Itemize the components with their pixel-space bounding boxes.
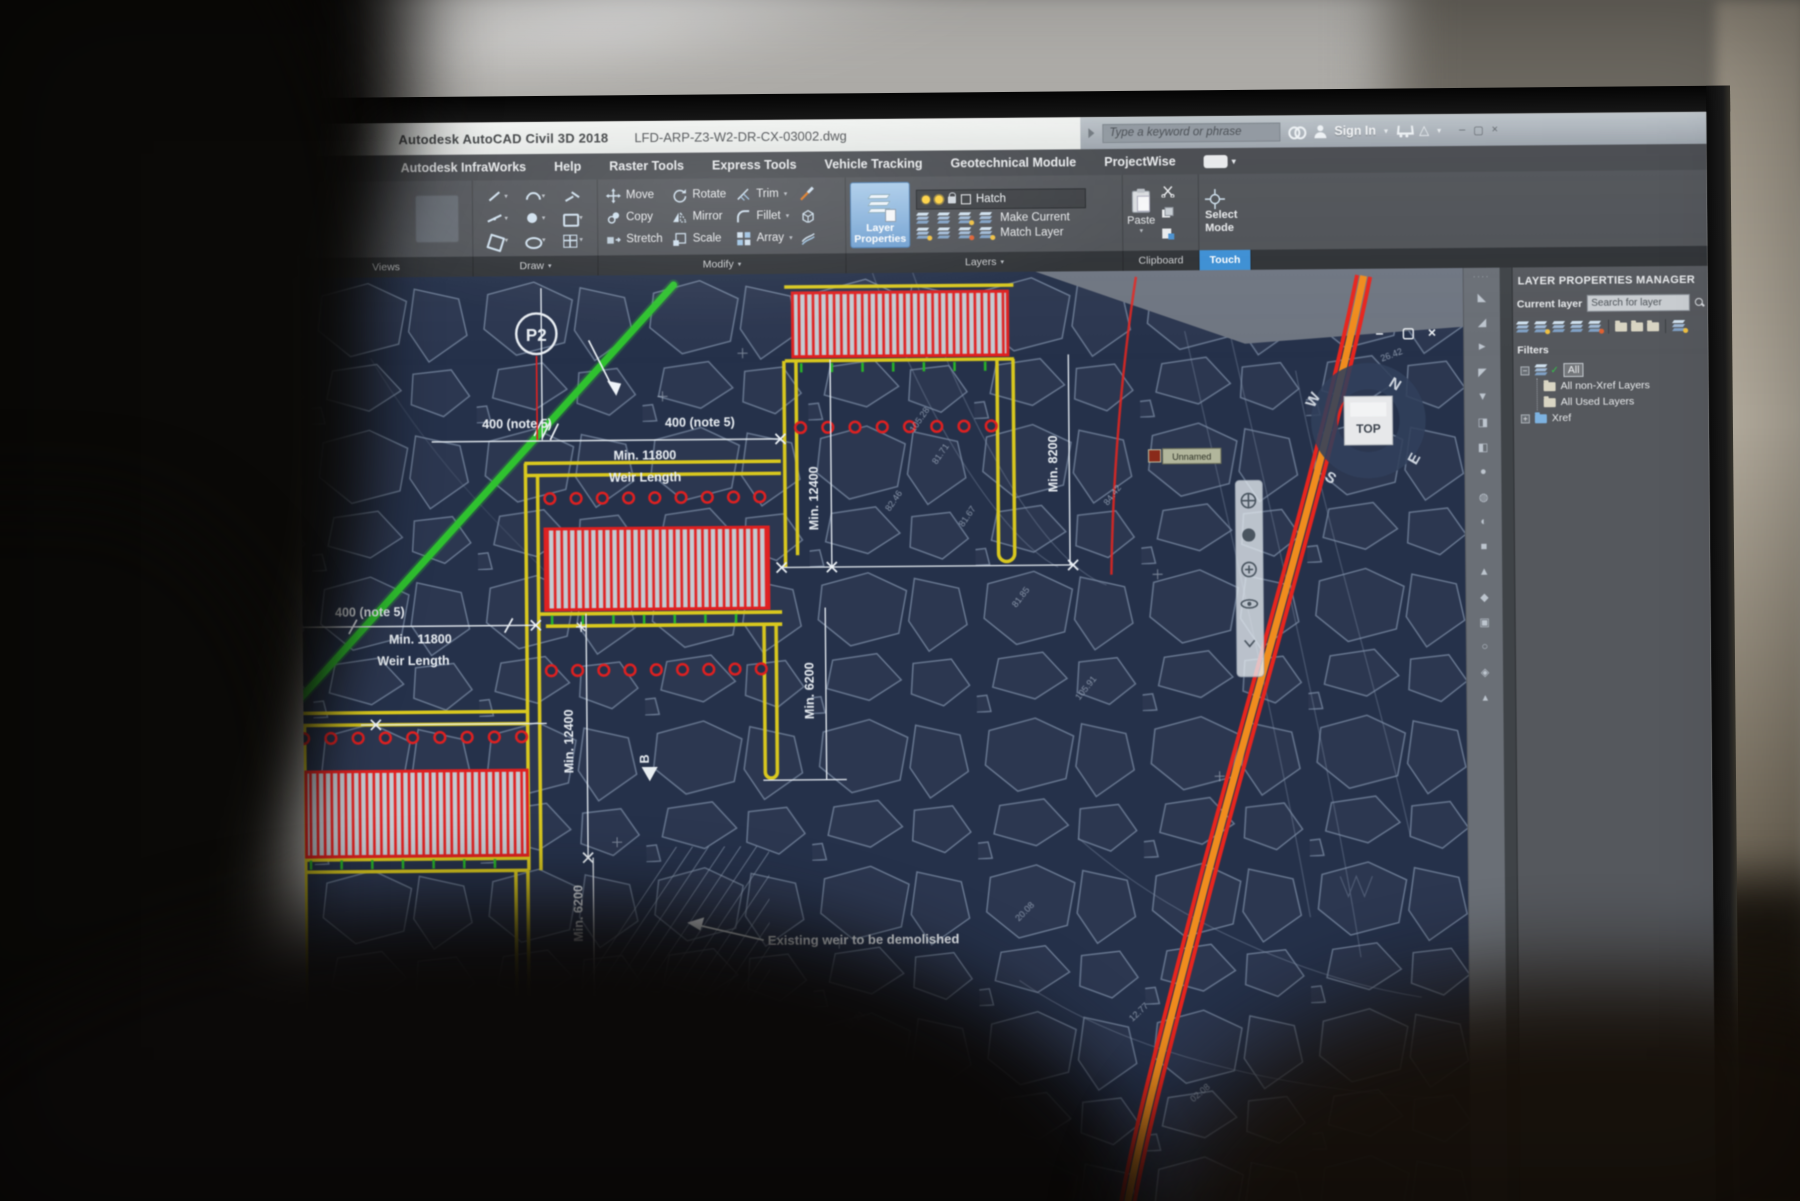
side-toolbar-icon[interactable]: ◨ — [1472, 413, 1494, 431]
new-layer-vp-icon[interactable] — [1588, 321, 1602, 333]
layer-icon[interactable] — [958, 212, 972, 224]
paste-button[interactable]: Paste ▾ — [1127, 191, 1156, 235]
select-mode-button[interactable]: Select Mode — [1199, 189, 1245, 235]
move-label: Move — [626, 189, 654, 201]
make-current-button[interactable]: Make Current — [1000, 211, 1070, 224]
sign-in-button[interactable]: Sign In — [1334, 124, 1376, 138]
offset-icon[interactable] — [801, 231, 817, 245]
lpm-toolbar — [1514, 313, 1708, 341]
folder-icon — [1544, 382, 1556, 391]
tab-projectwise[interactable]: ProjectWise — [1090, 148, 1190, 175]
caret-icon: ▾ — [784, 190, 788, 198]
tab-express-tools[interactable]: Express Tools — [698, 152, 811, 179]
panel-label-layers[interactable]: Layers▾ — [846, 251, 1123, 273]
layer-stack-icon — [867, 194, 893, 220]
set-current-icon[interactable] — [1631, 322, 1643, 331]
tab-geotechnical-module[interactable]: Geotechnical Module — [936, 149, 1090, 176]
layer-color-swatch[interactable] — [961, 194, 971, 204]
tab-vehicle-tracking[interactable]: Vehicle Tracking — [810, 151, 936, 178]
side-toolbar-icon[interactable]: ▣ — [1474, 613, 1496, 631]
explode-box-icon[interactable] — [800, 209, 816, 223]
polyline-icon — [565, 188, 580, 203]
autocad-window: Autodesk AutoCAD Civil 3D 2018 LFD-ARP-Z… — [298, 112, 1716, 1201]
side-toolbar-icon[interactable]: ▼ — [1472, 388, 1494, 406]
viewport-minimize-icon[interactable]: – — [1376, 324, 1384, 340]
autodesk-360-icon[interactable]: △ — [1419, 122, 1429, 138]
polygon-tool-button[interactable]: ▾ — [488, 233, 509, 248]
circle-tool-button[interactable]: ▾ — [525, 210, 546, 225]
scale-icon — [673, 231, 688, 246]
trim-button[interactable]: Trim ▾ — [736, 186, 792, 201]
ellipse-icon — [525, 233, 540, 248]
collapse-icon[interactable]: − — [1520, 366, 1529, 375]
side-toolbar-icon[interactable]: ■ — [1473, 538, 1495, 556]
mirror-icon — [672, 209, 687, 224]
p2-label: P2 — [526, 325, 547, 345]
layer-icon[interactable] — [916, 228, 930, 240]
expand-icon[interactable]: + — [1521, 414, 1530, 423]
trim-label: Trim — [756, 188, 779, 200]
app-title: Autodesk AutoCAD Civil 3D 2018 — [398, 130, 608, 147]
layer-filter-tree: − ✓ All All non-Xref Layers — [1514, 359, 1709, 427]
search-arrow-icon[interactable] — [1088, 128, 1094, 138]
tree-label-all[interactable]: All — [1564, 363, 1584, 377]
a360-caret-icon[interactable]: ▾ — [1437, 126, 1441, 135]
layer-dropdown[interactable]: Hatch — [916, 188, 1086, 209]
tree-item-used-layers[interactable]: All Used Layers — [1544, 393, 1709, 410]
dim-weir-length: Weir Length — [377, 653, 449, 668]
lpm-current-row: Current layer — [1514, 292, 1708, 315]
layer-settings-icon[interactable] — [1647, 322, 1659, 331]
line-icon — [487, 189, 502, 204]
person-body-silhouette — [0, 500, 300, 1201]
side-toolbar-icon[interactable]: ◍ — [1472, 488, 1494, 506]
current-layer-label: Current layer — [1517, 297, 1582, 310]
document-name: LFD-ARP-Z3-W2-DR-CX-03002.dwg — [634, 128, 847, 145]
side-toolbar-icon[interactable]: ► — [1471, 338, 1493, 356]
panel-modify: Move Copy Stretch Rotate Mirror — [598, 177, 847, 255]
caret-icon: ▾ — [789, 234, 793, 242]
ellipse-tool-button[interactable]: ▾ — [525, 232, 546, 247]
panel-draw: ▾ ▾ ▾ ▾ ▾ ▾ ▾ ▾ — [473, 179, 599, 256]
rotate-icon — [672, 187, 687, 202]
xline-tool-button[interactable]: ▾ — [487, 211, 508, 226]
side-toolbar-icon[interactable]: ◤ — [1471, 363, 1493, 381]
tree-label-xref[interactable]: Xref — [1552, 412, 1571, 424]
caret-icon: ▾ — [579, 236, 583, 244]
keyword-search-input[interactable] — [1102, 122, 1280, 143]
user-avatar-icon[interactable] — [1314, 125, 1326, 138]
paste-special-icon[interactable] — [1161, 227, 1175, 239]
toolbar-grip[interactable]: ∙∙∙∙ — [1473, 272, 1490, 281]
side-toolbar-icon[interactable]: ○ — [1474, 638, 1496, 656]
toolbar-separator — [1665, 319, 1666, 333]
new-property-filter-icon[interactable] — [1516, 321, 1530, 333]
match-layer-button[interactable]: Match Layer — [1000, 226, 1063, 239]
panel-layers: Layer Properties Hatch — [846, 175, 1124, 253]
stretch-icon — [606, 232, 621, 247]
layer-icon[interactable] — [937, 227, 951, 239]
tree-item-xref[interactable]: + Xref — [1521, 409, 1709, 427]
move-icon — [606, 188, 621, 203]
fillet-button[interactable]: Fillet ▾ — [736, 208, 792, 223]
layer-properties-button[interactable]: Layer Properties — [850, 182, 911, 249]
move-button[interactable]: Move — [606, 187, 663, 202]
circle-icon — [525, 211, 540, 226]
new-layer-icon[interactable] — [1570, 321, 1584, 333]
side-toolbar-icon[interactable]: ▴ — [1474, 688, 1496, 706]
person-hair-highlight — [0, 0, 260, 230]
dim-400-note5: 400 (note 5) — [482, 417, 552, 432]
caret-icon: ▾ — [579, 214, 583, 222]
scale-label: Scale — [693, 232, 722, 244]
fillet-label: Fillet — [756, 210, 780, 222]
side-toolbar-icon[interactable]: ◧ — [1472, 438, 1494, 456]
window-maximize-icon[interactable]: ▢ — [1473, 123, 1484, 136]
side-toolbar-icon[interactable]: ◈ — [1474, 663, 1496, 681]
polyline-tool-button[interactable] — [565, 188, 580, 203]
panel-touch: Select Mode — [1199, 174, 1252, 250]
window-close-icon[interactable]: × — [1492, 123, 1499, 136]
panel-views — [299, 181, 474, 259]
side-toolbar-icon[interactable]: ◢ — [1471, 313, 1493, 331]
caret-icon: ▾ — [1139, 227, 1143, 235]
layer-icon[interactable] — [937, 212, 951, 224]
binoculars-search-icon[interactable] — [1288, 126, 1306, 136]
layer-search-input[interactable] — [1587, 294, 1690, 312]
dim-weir-length: Weir Length — [609, 470, 681, 485]
new-group-filter-icon[interactable] — [1534, 321, 1548, 333]
dim-400-note5: 400 (note 5) — [665, 415, 735, 430]
xref-folder-icon — [1535, 414, 1547, 423]
panel-label-clipboard[interactable]: Clipboard — [1123, 250, 1199, 271]
refresh-icon[interactable] — [1672, 320, 1686, 332]
drawing-canvas[interactable]: P2 B 400 (note 5) 400 (note 5) Min. 1180… — [300, 268, 1472, 1201]
app-store-cart-icon[interactable] — [1396, 124, 1411, 136]
tab-raster-tools[interactable]: Raster Tools — [595, 153, 698, 180]
hatch-tool-button[interactable]: ▾ — [562, 232, 583, 247]
layers-panel-inner: Layer Properties Hatch — [846, 180, 1123, 248]
modify-extra-tools — [800, 183, 817, 249]
tree-label-non-xref[interactable]: All non-Xref Layers — [1561, 379, 1650, 392]
window-minimize-icon[interactable]: – — [1459, 123, 1465, 136]
trim-icon — [736, 187, 751, 202]
rotate-label: Rotate — [692, 188, 726, 200]
tree-label-used[interactable]: All Used Layers — [1561, 395, 1635, 408]
stretch-label: Stretch — [626, 233, 663, 245]
unnamed-tag: Unnamed — [1148, 448, 1221, 464]
tree-item-all[interactable]: − ✓ All — [1520, 361, 1708, 379]
make-current-row: Make Current — [916, 211, 1118, 225]
caret-icon: ▾ — [786, 212, 790, 220]
copy-icon — [606, 210, 621, 225]
side-toolbar-icon[interactable]: ◆ — [1473, 588, 1495, 606]
drawing-area: P2 B 400 (note 5) 400 (note 5) Min. 1180… — [300, 268, 1472, 1201]
mirror-button[interactable]: Mirror — [672, 209, 726, 224]
cut-scissors-icon[interactable] — [1161, 186, 1175, 198]
folder-icon — [1544, 398, 1556, 407]
clipboard-inner: Paste ▾ — [1123, 181, 1199, 244]
side-toolbar-icon[interactable]: ◣ — [1471, 288, 1493, 306]
array-icon — [737, 231, 752, 246]
dim-min-8200: Min. 8200 — [1046, 435, 1060, 492]
rectangle-tool-button[interactable]: ▾ — [562, 210, 583, 225]
dim-min-6200: Min. 6200 — [571, 885, 585, 942]
erase-brush-icon[interactable] — [800, 187, 816, 201]
stretch-button[interactable]: Stretch — [606, 231, 663, 246]
tab-help[interactable]: Help — [540, 154, 595, 180]
filters-label: Filters — [1514, 339, 1708, 361]
layer-properties-manager: LAYER PROPERTIES MANAGER Current layer — [1500, 266, 1717, 1201]
match-layer-row: Match Layer — [916, 226, 1118, 240]
workspace: P2 B 400 (note 5) 400 (note 5) Min. 1180… — [300, 266, 1717, 1201]
ribbon-filler — [1251, 170, 1708, 250]
panel-label-modify[interactable]: Modify▾ — [598, 253, 846, 275]
tab-autodesk-infraworks[interactable]: Autodesk InfraWorks — [299, 154, 541, 182]
line-tool-button[interactable]: ▾ — [487, 189, 508, 204]
current-layer-name: Hatch — [976, 193, 1006, 205]
search-magnifier-icon[interactable] — [1695, 297, 1705, 307]
panel-label-draw[interactable]: Draw▾ — [473, 255, 598, 276]
copy-clip-icon[interactable] — [1161, 206, 1175, 218]
layer-icon[interactable] — [958, 227, 972, 239]
panel-label-touch[interactable]: Touch — [1199, 250, 1251, 270]
paste-label: Paste — [1127, 215, 1155, 227]
paste-clipboard-icon — [1132, 191, 1150, 213]
polygon-icon — [488, 233, 503, 248]
ribbon: ▾ ▾ ▾ ▾ ▾ ▾ ▾ ▾ Move — [299, 170, 1708, 258]
dim-min-11800: Min. 11800 — [389, 632, 452, 647]
navigation-bar[interactable] — [1235, 480, 1264, 677]
check-icon: ✓ — [1550, 365, 1558, 376]
lpm-title: LAYER PROPERTIES MANAGER — [1514, 266, 1708, 294]
layer-on-bulb-icon[interactable] — [922, 196, 930, 204]
side-toolbar-icon[interactable]: ▲ — [1473, 563, 1495, 581]
delete-layer-icon[interactable] — [1615, 322, 1627, 331]
construction-line-icon — [487, 211, 502, 226]
photo-scene: Autodesk AutoCAD Civil 3D 2018 LFD-ARP-Z… — [0, 0, 1800, 1201]
dim-min-11800: Min. 11800 — [613, 448, 676, 463]
unnamed-label: Unnamed — [1172, 451, 1211, 461]
copy-label: Copy — [626, 211, 653, 223]
array-button[interactable]: Array ▾ — [737, 230, 793, 245]
dim-min-6200: Min. 6200 — [803, 662, 817, 719]
layer-unlock-icon[interactable] — [948, 196, 956, 203]
viewport-close-icon[interactable]: × — [1428, 324, 1436, 340]
all-filter-icon — [1534, 364, 1548, 376]
dim-min-12400: Min. 12400 — [562, 709, 577, 773]
demolish-note: Existing weir to be demolished — [768, 931, 960, 948]
layer-icon[interactable] — [916, 213, 930, 225]
arc-tool-button[interactable]: ▾ — [525, 188, 546, 203]
layer-properties-label: Layer Properties — [851, 223, 909, 246]
sign-in-caret-icon[interactable]: ▾ — [1384, 126, 1388, 135]
panel-label-views[interactable]: Views — [299, 257, 473, 279]
scale-button[interactable]: Scale — [673, 231, 727, 246]
workspace-caret-icon[interactable]: ▾ — [1232, 156, 1236, 165]
caret-icon: ▾ — [542, 214, 546, 222]
arc-icon — [525, 189, 540, 204]
dim-400-note5: 400 (note 5) — [335, 605, 405, 620]
riprap-rock-hatch — [300, 268, 1472, 1201]
workspace-switch-icon[interactable] — [1204, 154, 1228, 167]
b-label: B — [638, 754, 652, 763]
viewcube-top-face[interactable]: TOP — [1356, 422, 1381, 436]
dim-min-12400: Min. 12400 — [807, 466, 822, 530]
pan-icon — [1242, 528, 1255, 541]
caret-icon: ▾ — [542, 236, 546, 244]
copy-button[interactable]: Copy — [606, 209, 663, 224]
array-label: Array — [757, 232, 785, 244]
layer-icon[interactable] — [979, 227, 993, 239]
hatch-grid-icon — [562, 232, 577, 247]
layer-states-icon[interactable] — [1552, 321, 1566, 333]
monitor: Autodesk AutoCAD Civil 3D 2018 LFD-ARP-Z… — [298, 86, 1740, 1201]
select-mode-label: Select Mode — [1205, 209, 1245, 235]
layers-controls: Hatch Make Current — [916, 188, 1118, 240]
fillet-icon — [736, 209, 751, 224]
caret-icon: ▾ — [504, 214, 508, 222]
rotate-button[interactable]: Rotate — [672, 187, 726, 202]
side-toolbar-icon[interactable]: ● — [1472, 463, 1494, 481]
viewport-tools-icon[interactable] — [415, 195, 459, 243]
mirror-label: Mirror — [692, 210, 722, 222]
layer-icon[interactable] — [979, 212, 993, 224]
layer-thaw-sun-icon[interactable] — [935, 195, 943, 203]
caret-icon: ▾ — [542, 192, 546, 200]
caret-icon: ▾ — [504, 192, 508, 200]
draw-tools-grid: ▾ ▾ ▾ ▾ ▾ ▾ ▾ ▾ — [479, 185, 592, 252]
toolbar-separator — [1608, 320, 1609, 334]
clipboard-extra — [1161, 181, 1176, 243]
modify-tools-grid: Move Copy Stretch Rotate Mirror — [606, 183, 793, 251]
window-buttons: – ▢ × — [1459, 123, 1498, 136]
tree-item-non-xref[interactable]: All non-Xref Layers — [1544, 377, 1709, 394]
viewport-restore-icon[interactable]: ▢ — [1402, 324, 1415, 340]
rectangle-icon — [562, 210, 577, 225]
side-toolbar-icon[interactable]: ◐ — [1473, 513, 1495, 531]
crosshair-icon — [1205, 189, 1225, 209]
panel-clipboard: Paste ▾ — [1123, 174, 1200, 251]
